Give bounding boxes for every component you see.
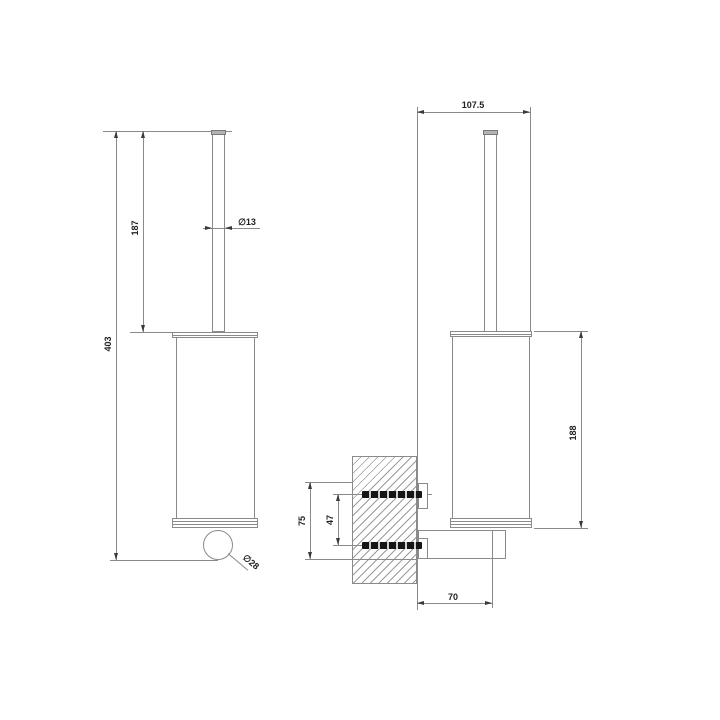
- dim-screw-spacing-label: 47: [325, 505, 335, 535]
- dim-overall-height-line: [116, 131, 117, 560]
- dim-width-label: 107.5: [448, 100, 498, 110]
- wall-hatch-section: [352, 456, 417, 584]
- arrow-up-icon: [336, 494, 340, 501]
- container-bottom-cap-inner-line: [173, 524, 257, 525]
- container-bottom-cap-inner-line: [173, 521, 257, 522]
- mount-span-top-extension-line: [305, 482, 352, 483]
- dim-handle-height-label: 187: [130, 213, 140, 243]
- arrow-down-icon: [308, 552, 312, 559]
- container-bottom-cap: [172, 518, 258, 528]
- container-bottom-cap-inner-line: [451, 521, 531, 522]
- dim-width-line: [417, 112, 530, 113]
- top-wall-screw: [362, 491, 422, 498]
- dim-wall-to-axis-line: [417, 603, 492, 604]
- arrow-left-icon: [417, 601, 424, 605]
- arrow-left-icon: [225, 226, 232, 230]
- arrow-down-icon: [336, 538, 340, 545]
- container-body: [452, 336, 530, 519]
- arrow-down-icon: [141, 325, 145, 332]
- arrow-right-icon: [485, 601, 492, 605]
- bottom-knob-circle: [203, 530, 233, 560]
- bottom-wall-screw: [362, 542, 422, 549]
- arrow-down-icon: [579, 521, 583, 528]
- dim-overall-height-label: 403: [103, 329, 113, 359]
- mount-span-bottom-extension-line: [305, 559, 417, 560]
- brush-handle-top-cap: [483, 130, 498, 135]
- container-body: [176, 337, 255, 519]
- dim-handle-diameter-label: ∅13: [233, 217, 261, 227]
- arrow-down-icon: [114, 553, 118, 560]
- arrow-up-icon: [114, 131, 118, 138]
- arrow-up-icon: [579, 331, 583, 338]
- dim-body-height-label: 188: [568, 418, 578, 448]
- dim-handle-height-line: [143, 131, 144, 332]
- arrow-up-icon: [308, 482, 312, 489]
- dim-mount-span-line: [310, 482, 311, 559]
- brush-handle-rod: [484, 131, 497, 332]
- arrow-left-icon: [417, 110, 424, 114]
- container-top-cap-inner-line: [173, 335, 257, 336]
- dim-mount-span-label: 75: [297, 506, 307, 536]
- drawing-canvas: 403 187 ∅13 ∅28: [0, 0, 720, 720]
- body-height-bottom-extension-line: [534, 528, 588, 529]
- front-mid-extension-line: [130, 332, 176, 333]
- width-extension-line: [530, 107, 531, 331]
- brush-handle-rod: [212, 131, 225, 332]
- arrow-up-icon: [141, 131, 145, 138]
- axis-extension-line: [492, 530, 493, 608]
- container-top-cap-inner-line: [451, 334, 531, 335]
- dim-body-height-line: [581, 331, 582, 528]
- arrow-right-icon: [205, 226, 212, 230]
- arrow-right-icon: [523, 110, 530, 114]
- brush-handle-top-cap: [211, 130, 226, 135]
- container-bottom-cap-inner-line: [451, 524, 531, 525]
- container-bottom-cap: [450, 518, 532, 528]
- dim-wall-to-axis-label: 70: [438, 592, 468, 602]
- front-bottom-extension-line: [110, 560, 218, 561]
- dim-knob-diameter-label: ∅28: [237, 549, 265, 575]
